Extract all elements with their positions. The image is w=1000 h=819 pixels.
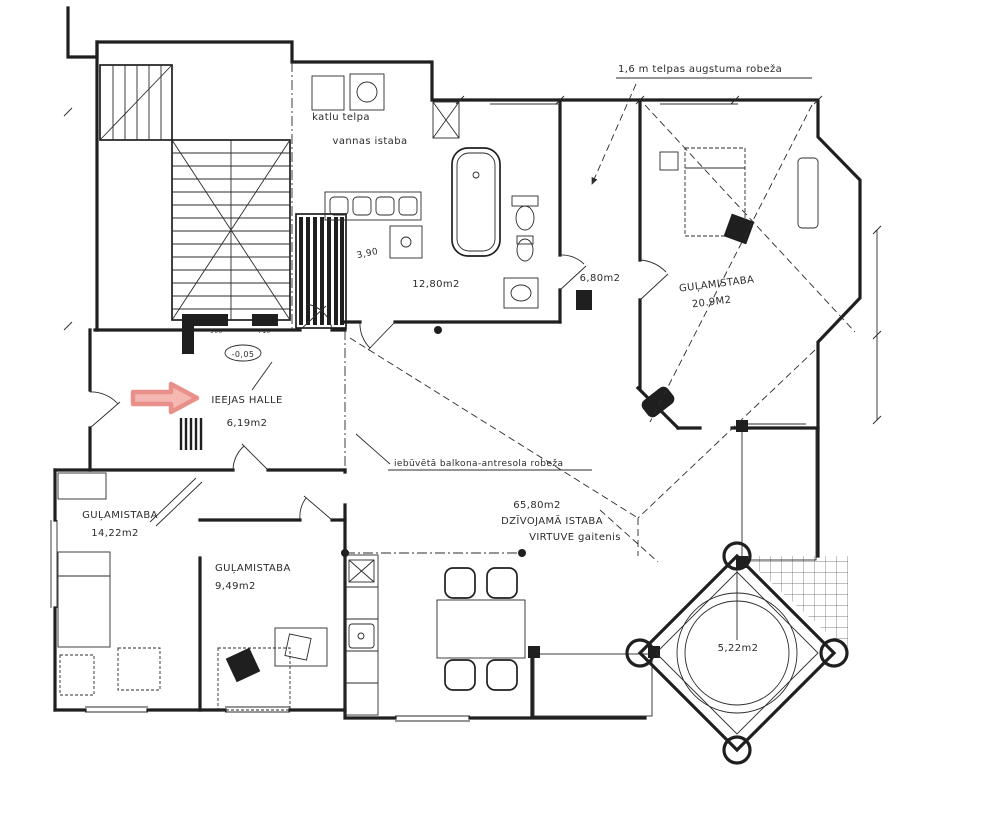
bedroom-left-area: 14,22m2 [91,528,139,539]
entry-hall-area: 6,19m2 [227,418,268,429]
sauna-dimension: 3,90 [356,247,379,261]
bathroom-name-label: vannas istaba [333,136,408,147]
bedroom-middle-name: GUĻAMISTABA [215,563,291,574]
bedroom-right-area: 20.9M2 [691,295,732,311]
highlight-arrow-fill [133,384,197,412]
living-room-name: DZĪVOJAMĀ ISTABA [501,514,603,527]
mezzanine-note: iebūvētā balkona-antresola robeža [394,459,563,469]
guide-lines [90,62,855,562]
bathroom-area: 12,80m2 [412,279,460,290]
living-room-area: 65,80m2 [513,500,561,511]
entry-hall-name: IEEJAS HALLE [211,395,282,406]
small-hall-area: 6,80m2 [580,273,621,284]
floor-plan-drawing: 1,6 m telpas augstuma robeža katlu telpa… [0,0,1000,819]
tower-balcony-area: 5,22m2 [718,643,759,654]
fixtures [181,74,592,450]
boiler-room-label: katlu telpa [312,112,370,123]
living-room-subtitle: VIRTUVE gaitenis [529,532,621,543]
bedroom-left-name: GUĻAMISTABA [82,510,158,521]
dim-900: 900 [210,328,223,335]
dim-710: 710 [258,328,271,335]
dimension-marks [64,96,881,424]
level-mark: -0,05 [232,350,255,359]
staircase [100,65,290,320]
floor-plan-page: 1,6 m telpas augstuma robeža katlu telpa… [0,0,1000,819]
highlight-arrow [133,384,197,412]
height-limit-note: 1,6 m telpas augstuma robeža [618,63,782,75]
bedroom-middle-area: 9,49m2 [215,581,256,592]
